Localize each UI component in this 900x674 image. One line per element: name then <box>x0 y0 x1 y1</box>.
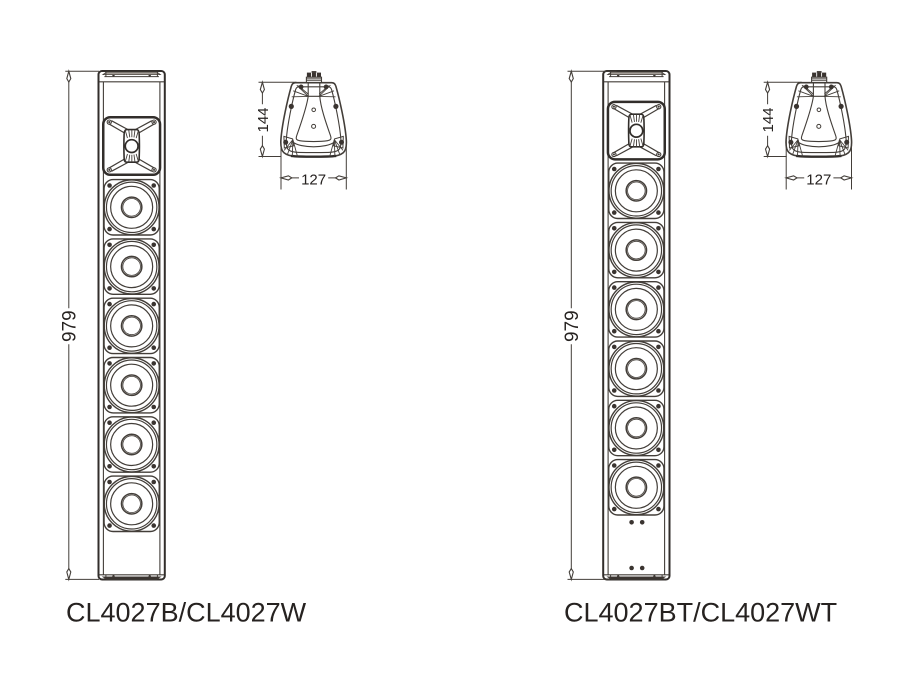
svg-text:CL4027BT/CL4027WT: CL4027BT/CL4027WT <box>564 598 837 628</box>
svg-text:979: 979 <box>59 310 80 342</box>
svg-text:979: 979 <box>562 310 583 342</box>
svg-text:CL4027B/CL4027W: CL4027B/CL4027W <box>66 598 307 628</box>
